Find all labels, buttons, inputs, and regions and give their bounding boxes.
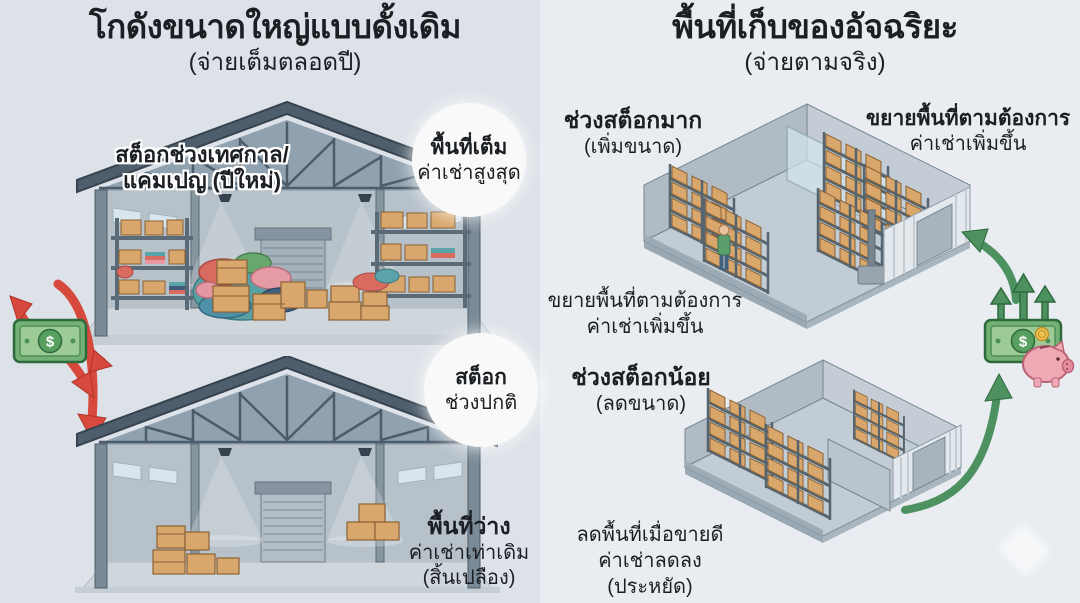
full-space-badge: พื้นที่เต็ม ค่าเช่าสูงสุด: [412, 103, 526, 217]
left-title: โกดังขนาดใหญ่แบบดั้งเดิม: [60, 8, 490, 46]
save-caption-line1: ลดพื้นที่เมื่อขายดี: [550, 522, 750, 548]
infographic-canvas: โกดังขนาดใหญ่แบบดั้งเดิม (จ่ายเต็มตลอดปี…: [0, 0, 1080, 603]
empty-space-caption: พื้นที่ว่าง ค่าเช่าเท่าเดิม (สิ้นเปลือง): [390, 512, 548, 591]
money-savings-icon: $: [890, 180, 1080, 520]
seasonal-stock-label: สต็อกช่วงเทศกาล/ แคมเปญ (ปีใหม่): [102, 142, 302, 194]
save-caption-line2: ค่าเช่าลดลง: [550, 548, 750, 574]
expand-on-demand-note: ขยายพื้นที่ตามต้องการ ค่าเช่าเพิ่มขึ้น: [545, 288, 745, 340]
expand-note-line1: ขยายพื้นที่ตามต้องการ: [545, 288, 745, 314]
seasonal-stock-line1: สต็อกช่วงเทศกาล/: [102, 142, 302, 168]
dollar-symbol: $: [46, 334, 55, 351]
left-shelf-rack: [111, 218, 193, 310]
empty-space-line3: (สิ้นเปลือง): [390, 566, 548, 591]
save-caption-line3: (ประหยัด): [550, 574, 750, 600]
empty-space-line1: พื้นที่ว่าง: [390, 512, 548, 541]
dollar-symbol: $: [1019, 334, 1028, 351]
coin-icon: [1036, 328, 1049, 341]
normal-stock-badge-line1: สต็อก: [455, 365, 507, 390]
full-space-badge-line2: ค่าเช่าสูงสุด: [417, 161, 520, 185]
empty-space-line2: ค่าเช่าเท่าเดิม: [390, 541, 548, 566]
normal-stock-badge: สต็อก ช่วงปกติ: [424, 333, 538, 447]
door-lintel: [255, 228, 331, 240]
seasonal-stock-line2: แคมเปญ (ปีใหม่): [102, 168, 302, 194]
savings-caption: ลดพื้นที่เมื่อขายดี ค่าเช่าลดลง (ประหยัด…: [550, 522, 750, 600]
left-subtitle: (จ่ายเต็มตลอดปี): [60, 50, 490, 76]
up-arrows-icon: [991, 274, 1055, 324]
expand-note-line2: ค่าเช่าเพิ่มขึ้น: [545, 314, 745, 340]
right-title: พื้นที่เก็บของอัจฉริยะ: [605, 8, 1025, 46]
right-subtitle: (จ่ายตามจริง): [605, 50, 1025, 76]
closed-roller-door: [261, 494, 325, 562]
normal-stock-badge-line2: ช่วงปกติ: [445, 391, 517, 415]
full-space-badge-line1: พื้นที่เต็ม: [431, 135, 508, 160]
